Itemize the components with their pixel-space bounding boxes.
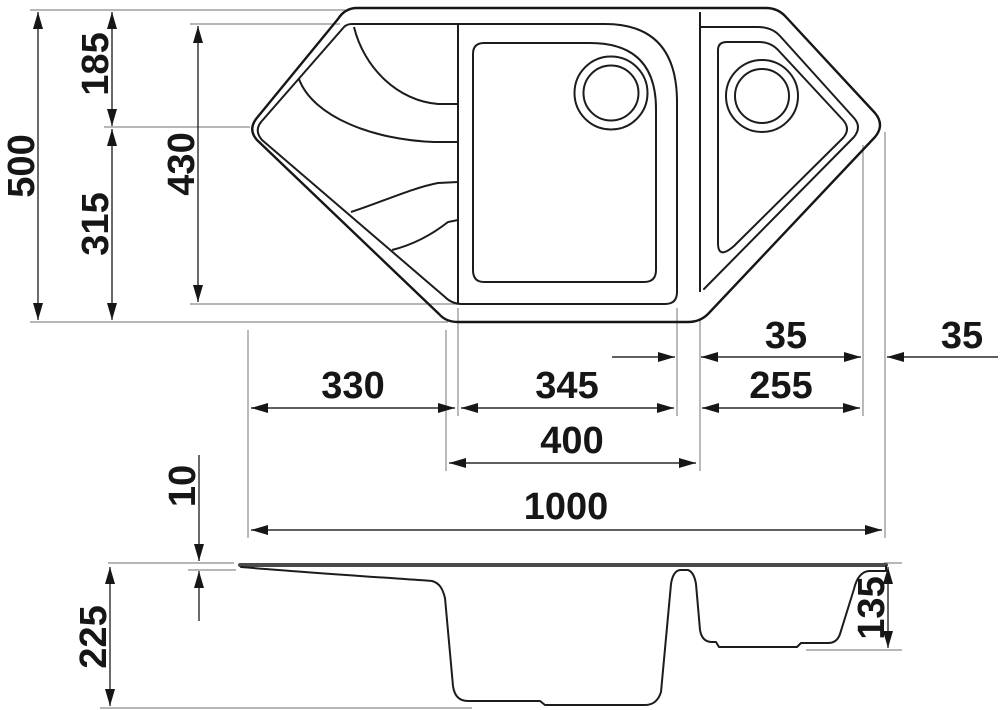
dim-label-main-bowl-width: 345 (535, 365, 598, 407)
dimension-labels: 500 185 315 430 330 345 255 400 1000 35 … (1, 32, 983, 668)
dim-label-overall-height: 225 (73, 605, 115, 668)
dim-label-edge-rim-width: 35 (941, 315, 983, 357)
corner-drain-outer-circle (726, 60, 798, 132)
dim-label-drainboard-width: 330 (321, 365, 384, 407)
plan-view (252, 8, 880, 322)
dim-label-corner-bowl-depth: 135 (851, 576, 893, 639)
main-drain-inner-circle (584, 66, 639, 121)
section-profile (241, 566, 886, 705)
sink-outer-outline (252, 8, 880, 322)
dim-label-bowl-outer-width: 400 (540, 420, 603, 462)
dim-label-overall-depth: 500 (1, 134, 43, 197)
corner-drain-inner-circle (735, 69, 789, 123)
technical-drawing: 500 185 315 430 330 345 255 400 1000 35 … (0, 0, 1000, 710)
drawing-sheet: 500 185 315 430 330 345 255 400 1000 35 … (0, 0, 1000, 710)
corner-bowl-outline (718, 42, 847, 252)
dim-label-divider-rim-width: 35 (765, 315, 807, 357)
main-bowl-outline (473, 43, 656, 282)
dim-label-inner-depth: 430 (161, 132, 203, 195)
dim-label-rim-height: 10 (162, 465, 204, 507)
dim-label-vertex-offset-bottom: 315 (75, 192, 117, 255)
drainboard-grooves (299, 27, 458, 250)
dim-label-corner-bowl-width: 255 (749, 365, 812, 407)
dim-label-vertex-offset-top: 185 (75, 32, 117, 95)
main-drain-outer-circle (575, 57, 648, 130)
groove-line (299, 79, 458, 142)
groove-line (392, 220, 458, 250)
groove-line (351, 182, 458, 212)
dim-label-overall-width: 1000 (524, 486, 609, 528)
section-view (240, 565, 886, 705)
extension-lines (30, 10, 902, 708)
groove-line (354, 27, 458, 104)
corner-wing-inner-outline (700, 27, 858, 289)
